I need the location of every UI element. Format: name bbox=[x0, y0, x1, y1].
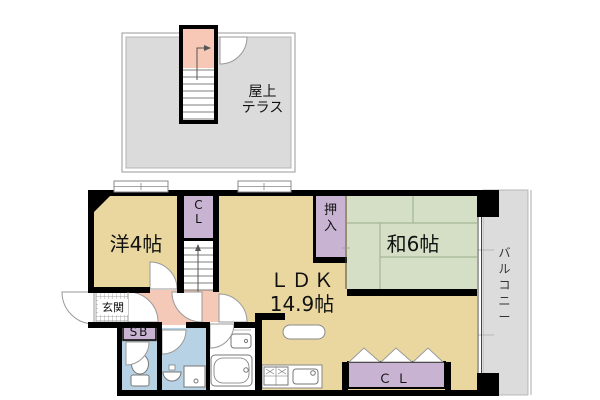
kitchen-counter-icon bbox=[283, 325, 325, 339]
folding-door-icon bbox=[349, 348, 443, 362]
wall-bottom bbox=[117, 390, 481, 396]
closet-top-wall bbox=[184, 238, 213, 241]
washer-drain bbox=[194, 379, 198, 383]
wall-block-topright bbox=[477, 190, 499, 217]
western-room-label: 洋4帖 bbox=[92, 228, 180, 257]
wall-outer-left-lower bbox=[117, 322, 122, 396]
wall-western-south bbox=[88, 287, 150, 293]
wall-closet-right bbox=[445, 362, 451, 390]
wall-washroom-bathroom bbox=[206, 322, 210, 396]
wall-block-bottomright bbox=[477, 373, 499, 396]
wall-kitchen-vertical bbox=[255, 313, 262, 396]
oshiire-label: 押 入 bbox=[316, 203, 345, 235]
wall-bathroom-top-left bbox=[186, 322, 210, 328]
floorplan-drawing bbox=[0, 0, 600, 400]
closet-top-label: C L bbox=[184, 198, 213, 226]
closet-bottom-label: ＣＬ bbox=[348, 368, 445, 387]
ldk-size-label: 14.9帖 bbox=[238, 288, 366, 317]
japanese-room-label: 和6帖 bbox=[353, 228, 473, 257]
toilet-tank bbox=[131, 375, 149, 386]
entrance-door-swing-icon bbox=[62, 292, 94, 324]
wall-toilet-washroom bbox=[157, 322, 162, 396]
rooftop-terrace-label: 屋上 テラス bbox=[205, 84, 320, 116]
balcony-label: バ ル コ ニ ー bbox=[496, 245, 513, 325]
balcony-sliding-door-icon bbox=[478, 217, 482, 373]
floorplan: 屋上 テラス 洋4帖 C L ＬＤＫ 14.9帖 押 入 和6帖 バ ル コ ニ… bbox=[0, 0, 600, 400]
wall-oshiire-bottom bbox=[313, 257, 347, 263]
bath-faucet bbox=[244, 368, 248, 372]
bathroom-sink-tap bbox=[244, 339, 247, 342]
entrance-label: 玄関 bbox=[98, 299, 128, 315]
kitchen-tap bbox=[311, 371, 316, 376]
wall-stairs-east bbox=[213, 190, 219, 292]
wall-japanese-south bbox=[347, 289, 477, 296]
washing-machine-icon bbox=[184, 366, 205, 387]
washbasin-tap bbox=[169, 365, 175, 370]
shoebox-label: SB bbox=[123, 325, 156, 339]
